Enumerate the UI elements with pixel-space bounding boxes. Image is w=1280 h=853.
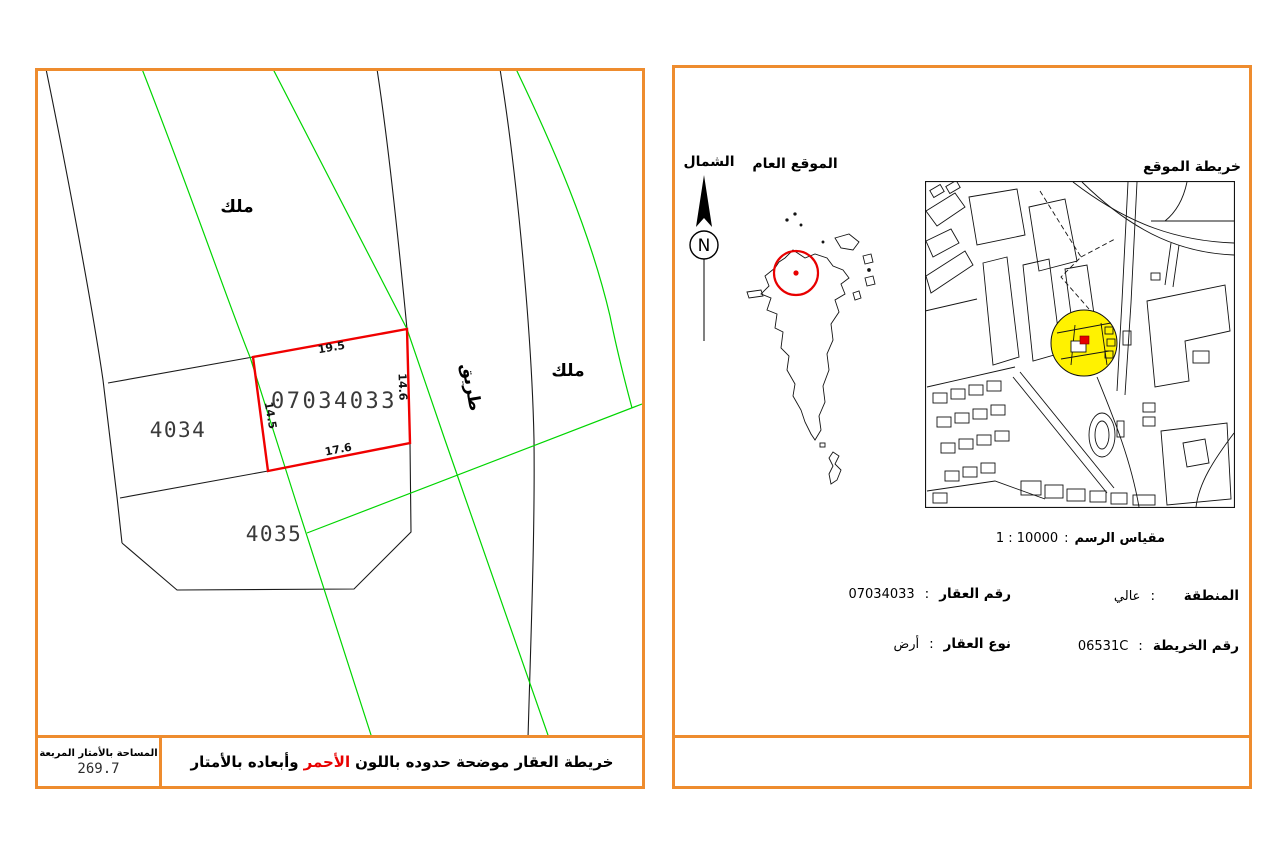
bahrain-overview-map (735, 198, 905, 488)
map-caption: خريطة العقار موضحة حدوده باللون الأحمر و… (162, 738, 642, 786)
area-label: المساحة بالأمتار المربعة (39, 748, 157, 759)
plot-4034-label: 4034 (150, 418, 207, 442)
dim-right: 14.6 (396, 373, 410, 401)
region-label: المنطقة (1165, 588, 1239, 604)
milk-label-right: ملك (551, 361, 584, 381)
colon: : (1150, 588, 1155, 604)
parcel-number-row: رقم العقار : 07034033 (848, 586, 1011, 602)
region-value: عالي (1114, 589, 1141, 604)
plot-4035-label: 4035 (246, 522, 303, 546)
north-label: الشمال (683, 154, 735, 170)
target-parcel-marker (1080, 336, 1089, 344)
caption-red-word: الأحمر (304, 753, 351, 771)
north-compass: N (683, 175, 743, 345)
property-type-value: أرض (893, 637, 919, 652)
parcel-map-panel: 07034033 19.5 14.6 14.5 17.6 4034 4035 م… (35, 68, 645, 789)
region-row: المنطقة : عالي (1114, 588, 1239, 604)
map-scale: مقياس الرسم : 10000 : 1 (996, 531, 1165, 546)
colon: : (925, 586, 930, 602)
property-type-row: نوع العقار : أرض (893, 636, 1011, 652)
map-number-row: رقم الخريطة : 06531C (1078, 638, 1239, 654)
map-number-label: رقم الخريطة (1153, 638, 1239, 654)
property-type-label: نوع العقار (944, 636, 1011, 652)
scale-colon: : (1064, 531, 1068, 546)
boundary-line-mid (377, 71, 407, 329)
milk-label-top-left: ملك (220, 197, 253, 217)
north-arrow-icon (696, 175, 712, 227)
colon: : (1138, 638, 1143, 654)
green-road-line-d (307, 404, 642, 533)
scale-value: 10000 : 1 (996, 531, 1058, 546)
green-road-line-c (516, 71, 632, 408)
compass-letter: N (698, 236, 711, 256)
caption-post: وأبعاده بالأمتار (191, 753, 299, 771)
street-location-map (925, 181, 1235, 508)
right-panel-footer (675, 735, 1249, 786)
scale-label: مقياس الرسم (1075, 531, 1165, 546)
road-label: طريق (457, 362, 485, 413)
general-location-dot (793, 270, 798, 275)
boundary-line-west (46, 71, 122, 543)
area-box: المساحة بالأمتار المربعة 269.7 (38, 738, 162, 786)
parcel-number-label: رقم العقار (939, 586, 1011, 602)
left-panel-footer: المساحة بالأمتار المربعة 269.7 خريطة الع… (38, 735, 642, 786)
cadastral-drawing: 07034033 19.5 14.6 14.5 17.6 4034 4035 م… (38, 71, 642, 738)
colon: : (929, 636, 934, 652)
caption-pre: خريطة العقار موضحة حدوده باللون (355, 753, 613, 771)
dim-top: 19.5 (317, 339, 346, 357)
plot-4034-north-boundary (108, 357, 253, 383)
location-panel: الشمال الموقع العام خريطة الموقع N (672, 65, 1252, 789)
general-location-label: الموقع العام (745, 156, 845, 172)
boundary-line-east (500, 71, 534, 738)
map-number-value: 06531C (1078, 639, 1128, 654)
target-parcel-number: 07034033 (271, 389, 397, 414)
location-map-label: خريطة الموقع (1143, 159, 1241, 175)
parcel-number-value: 07034033 (848, 587, 914, 602)
plot-4034-south-boundary (120, 471, 268, 498)
stadium-shape (1089, 413, 1124, 457)
area-value: 269.7 (77, 761, 119, 777)
